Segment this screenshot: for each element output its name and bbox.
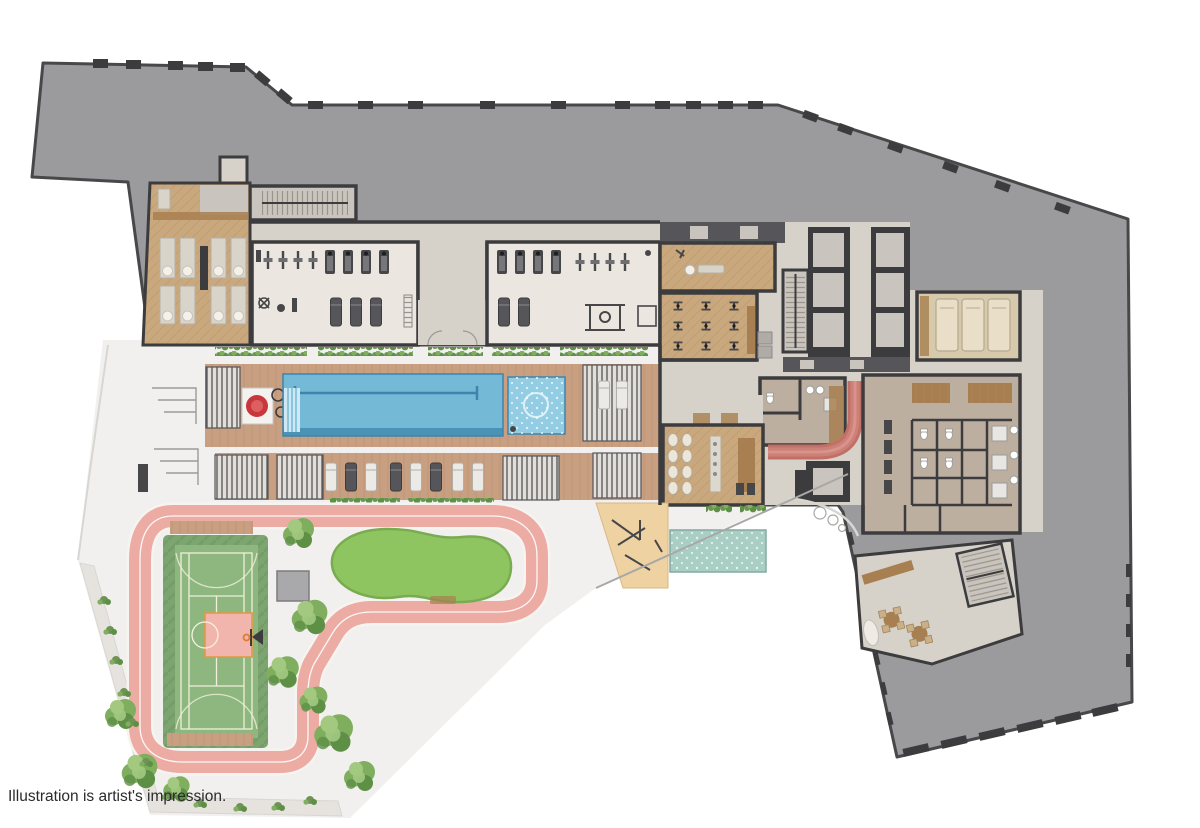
locker-cubbies xyxy=(758,332,772,344)
changing-rooms xyxy=(863,375,1020,533)
steam-rooms xyxy=(760,378,845,445)
service-room-slot xyxy=(690,226,708,239)
residents-dining-room xyxy=(143,183,250,345)
locker-cubbies xyxy=(758,346,772,358)
yoga-studio xyxy=(660,243,775,291)
lounge-cafe xyxy=(663,395,763,505)
lap-pool xyxy=(283,374,503,436)
service-rooms xyxy=(660,222,785,243)
stair-core xyxy=(783,270,808,352)
fitness-studio-east xyxy=(487,242,660,345)
multi-sport-court xyxy=(163,521,268,748)
lawn-bench xyxy=(430,596,456,604)
service-room-slot xyxy=(740,226,758,239)
showers xyxy=(992,426,1007,498)
sauna-treatment-room xyxy=(917,292,1020,360)
dining-console xyxy=(200,246,208,290)
lawn xyxy=(332,529,511,602)
fitness-studio-west xyxy=(252,242,418,345)
caption: Illustration is artist's impression. xyxy=(8,788,226,806)
service-slot xyxy=(850,360,864,369)
spa-pool xyxy=(508,377,565,434)
pool-steps xyxy=(284,388,300,432)
service-slot xyxy=(800,360,814,369)
gym-lobby xyxy=(418,242,487,345)
floor-plan-canvas xyxy=(0,0,1200,828)
locker-bank xyxy=(829,386,844,443)
floor-plan-illustration: Illustration is artist's impression. xyxy=(0,0,1200,828)
treatment-beds xyxy=(936,299,1010,351)
stairs-northwest xyxy=(250,186,356,220)
spin-studio xyxy=(660,293,757,360)
garden-shed xyxy=(277,571,309,601)
pantry xyxy=(153,185,248,220)
kids-pool xyxy=(670,530,766,572)
